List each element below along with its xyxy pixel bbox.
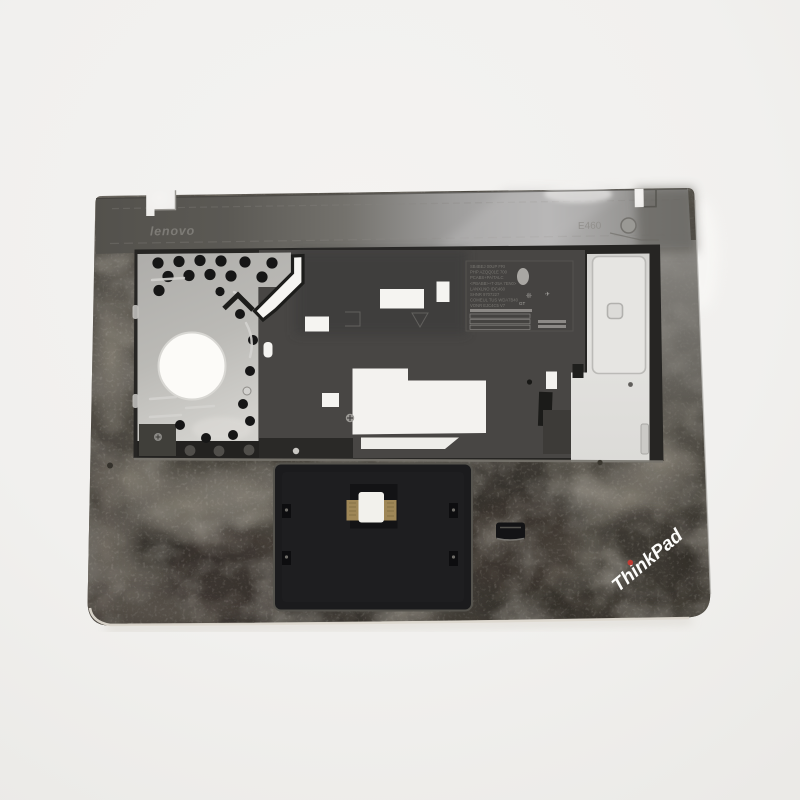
svg-text:SHNR 9707227: SHNR 9707227 <box>470 292 500 297</box>
svg-text:GT: GT <box>519 301 526 306</box>
svg-text:❊: ❊ <box>526 292 532 300</box>
svg-text:PCABS+PA/TALC: PCABS+PA/TALC <box>470 275 503 280</box>
svg-text:PHP AZQQ01E 700: PHP AZQQ01E 700 <box>470 270 508 275</box>
svg-text:lenovo: lenovo <box>150 224 195 239</box>
svg-text:VONR EJC4C5 V7: VONR EJC4C5 V7 <box>470 303 506 308</box>
svg-text:✈: ✈ <box>545 291 550 298</box>
svg-text:E460: E460 <box>578 221 602 232</box>
svg-text:COMEUL TUS WDA7B40: COMEUL TUS WDA7B40 <box>470 298 519 303</box>
svg-text:LANXLNO IDC460: LANXLNO IDC460 <box>470 286 506 291</box>
svg-text:<PBABB>+T-25A 7EN0>: <PBABB>+T-25A 7EN0> <box>470 281 517 286</box>
svg-text:SB4BEJ 00UP FRI: SB4BEJ 00UP FRI <box>470 264 505 269</box>
